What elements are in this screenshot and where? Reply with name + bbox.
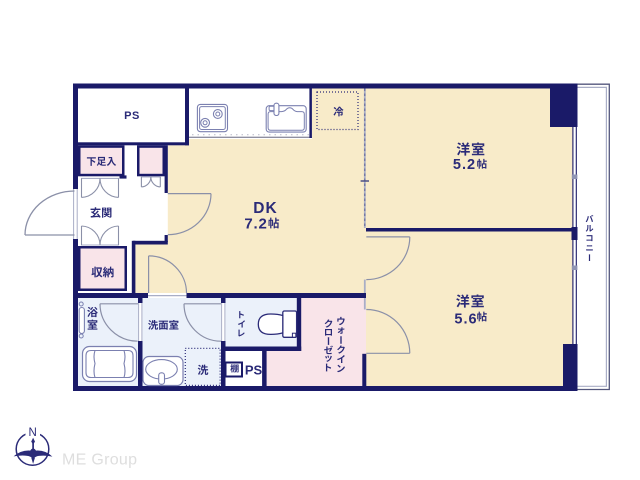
svg-text:ME Group: ME Group [62,452,137,469]
svg-text:PS: PS [245,362,263,377]
svg-text:5.6: 5.6 [454,311,477,327]
svg-text:5.2: 5.2 [453,157,476,173]
svg-text:7.2: 7.2 [244,215,267,232]
svg-text:PS: PS [124,110,140,122]
svg-text:N: N [29,427,37,439]
